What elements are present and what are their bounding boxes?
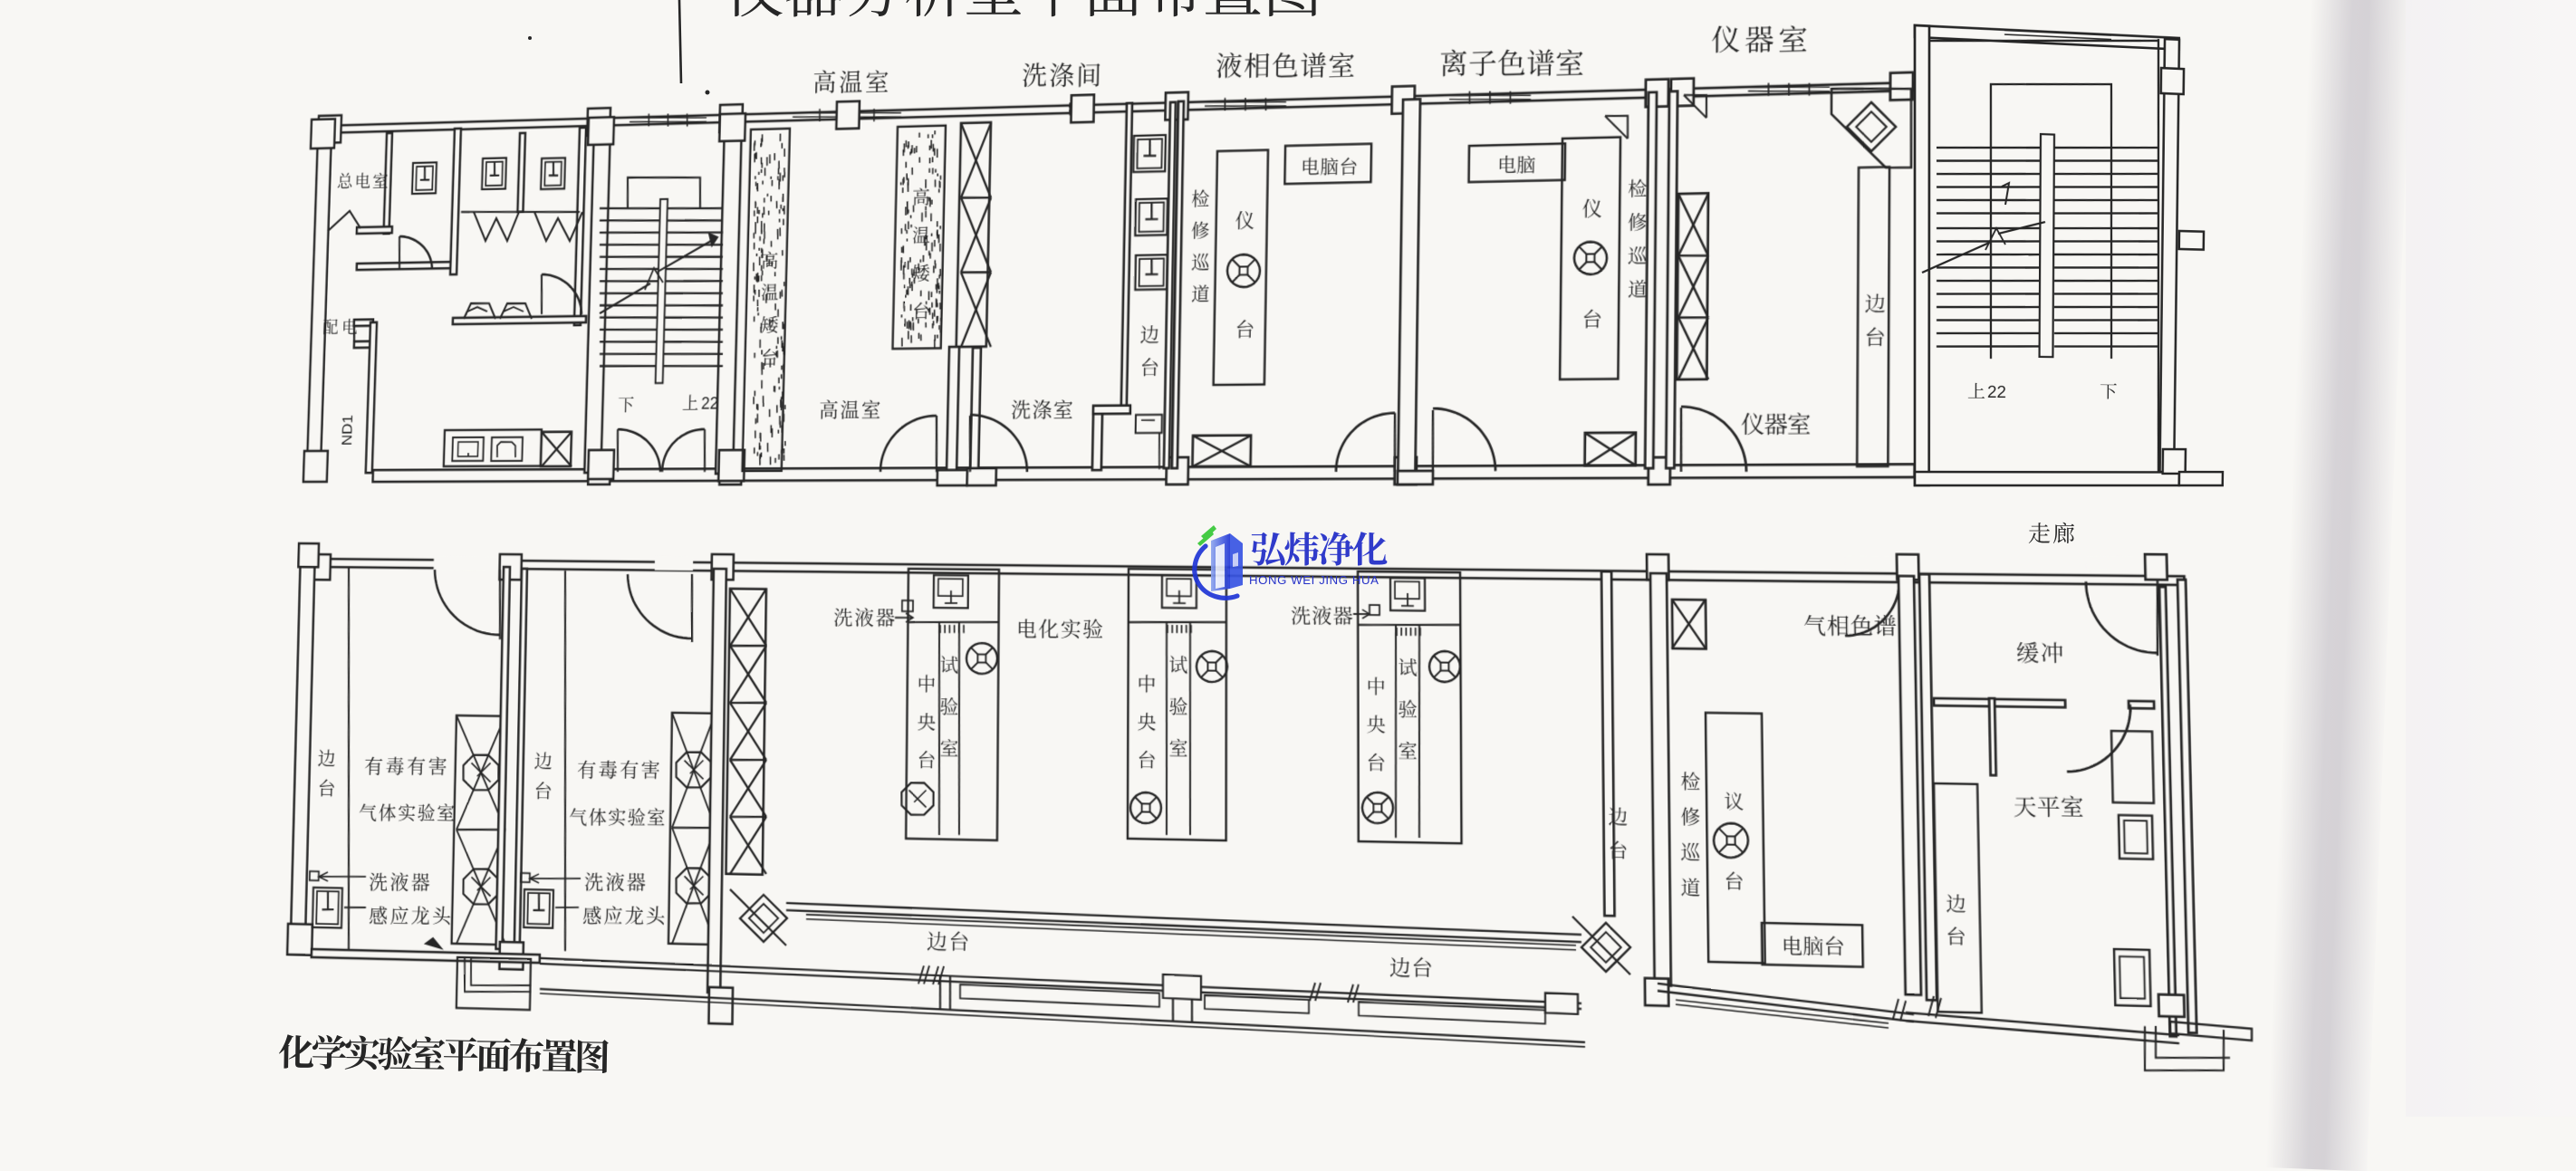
svg-text:HONG WEI JING HUA: HONG WEI JING HUA: [1249, 573, 1379, 587]
